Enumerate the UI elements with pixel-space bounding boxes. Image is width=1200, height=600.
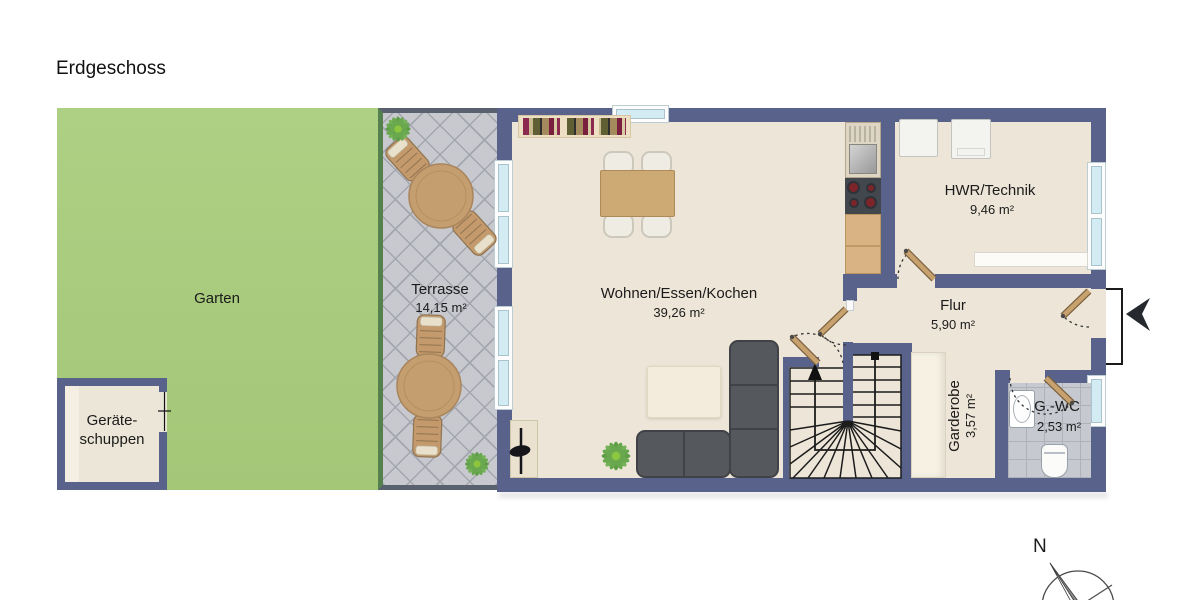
- tv-icon: [509, 428, 532, 474]
- plant-icon: [601, 441, 631, 471]
- door-swing-wc: [1010, 378, 1074, 414]
- plan-vector-layer: [0, 0, 1200, 600]
- compass-rose-icon: [1042, 563, 1114, 600]
- door-swing-hwr: [898, 249, 934, 279]
- plant-icon: [465, 452, 490, 477]
- patio-set-icon: [395, 314, 464, 458]
- floor-plan: Erdgeschoss: [0, 0, 1200, 600]
- door-swing-living-flur: [818, 309, 846, 345]
- door-swing-entry: [1061, 291, 1089, 327]
- entry-arrow-icon: [1126, 298, 1150, 331]
- patio-set-icon: [370, 122, 513, 270]
- door-swing-stair-hall: [790, 333, 843, 363]
- stairs: [790, 352, 901, 478]
- shed-door-mark: [158, 392, 171, 431]
